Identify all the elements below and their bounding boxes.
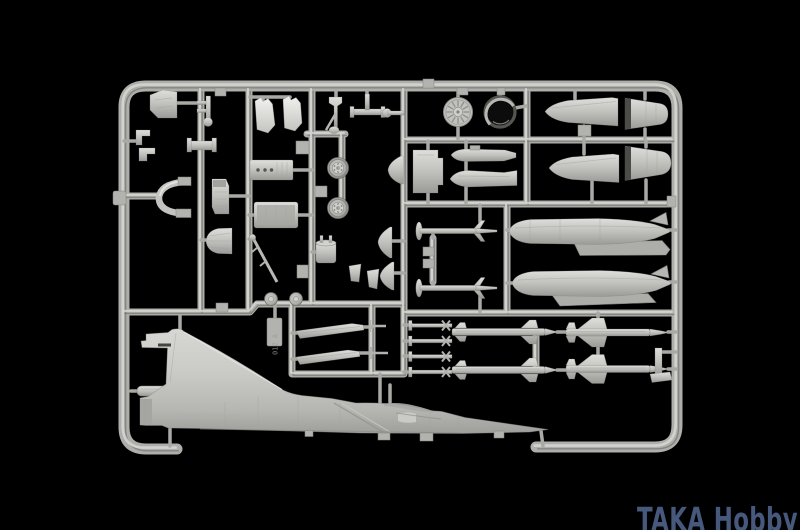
fin-dark-marking [158,344,171,347]
sprue-photo: 012 A [0,0,800,530]
instrument-panel [250,160,293,180]
nose-wheel-2 [290,293,303,306]
clip-part-1 [296,141,309,154]
engine-ring-part [485,97,515,127]
engine-fan-part [444,98,473,127]
small-block-2 [423,259,434,268]
pod-half-2 [450,171,517,188]
clip-part-3 [297,265,308,278]
windscreen-blade-2 [283,96,302,131]
main-wheel-2 [328,198,349,219]
wedge-part-1 [349,264,361,282]
wedge-part-2 [367,269,379,289]
cockpit-tub [254,202,298,228]
small-block-1 [423,247,434,256]
nose-wheel-1 [265,293,278,306]
left-frame-tab [113,191,126,205]
ejection-seat [212,179,229,214]
clip-part-2 [315,186,327,197]
photo-stage: 012 A [0,0,800,530]
sprue-plate-label: 012 A [272,333,280,355]
cockpit-side-part [150,90,177,118]
jetpipe-shading [140,399,152,425]
watermark-text: TAKA Hobby [637,500,798,530]
main-wheel-1 [328,158,349,179]
